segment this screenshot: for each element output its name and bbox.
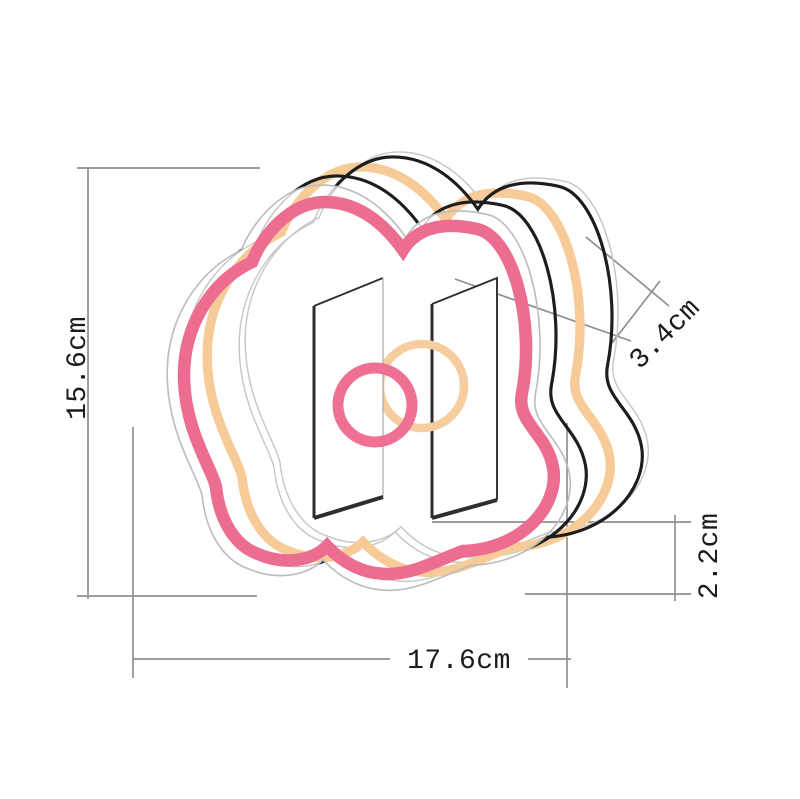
- depth-ext-line-1: [586, 237, 669, 306]
- depth-label: 3.4cm: [624, 293, 707, 376]
- flower-neon-sign-diagram: 15.6cm 17.6cm 2.2cm 3.4cm: [0, 0, 800, 799]
- logo-left-panel: [314, 278, 383, 518]
- height-label: 15.6cm: [63, 316, 94, 420]
- dimension-diagram: 15.6cm 17.6cm 2.2cm 3.4cm: [0, 0, 800, 799]
- center-logo: [314, 278, 497, 518]
- thickness-label: 2.2cm: [695, 513, 726, 600]
- width-label: 17.6cm: [407, 646, 511, 677]
- flower-back-layers: [183, 152, 648, 581]
